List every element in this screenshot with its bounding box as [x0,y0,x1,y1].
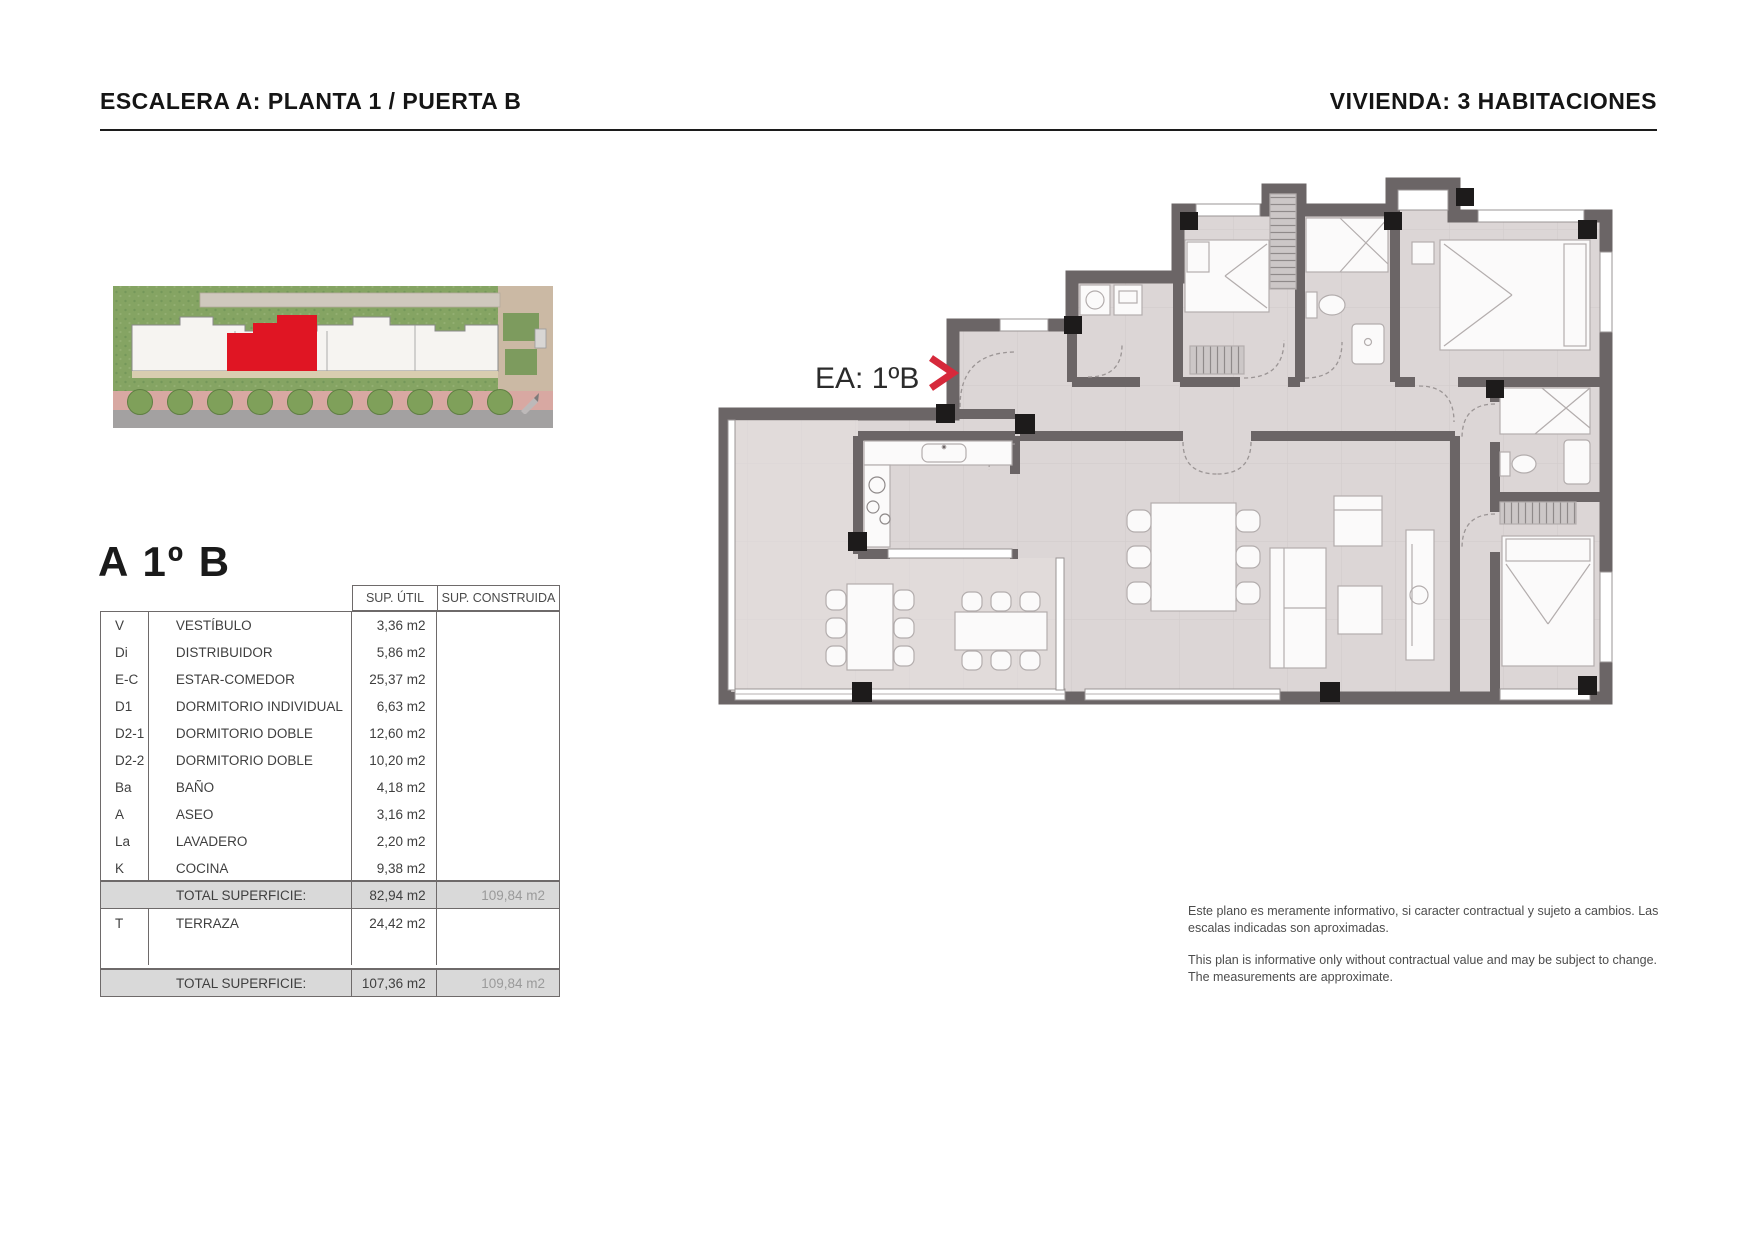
armchair [1334,496,1382,546]
table-row: VVESTÍBULO3,36 m2 [101,612,559,639]
table-row: D1DORMITORIO INDIVIDUAL6,63 m2 [101,693,559,720]
table-row: BaBAÑO4,18 m2 [101,774,559,801]
double-bed-2 [1502,536,1594,666]
terrace-table-2 [955,592,1047,670]
tv-sideboard [1406,530,1434,660]
site-car [535,329,546,348]
table-row: LaLAVADERO2,20 m2 [101,828,559,855]
table-row: D2-2DORMITORIO DOBLE10,20 m2 [101,747,559,774]
table-row: AASEO3,16 m2 [101,801,559,828]
table-row: E-CESTAR-COMEDOR25,37 m2 [101,666,559,693]
terrace-section: T TERRAZA 24,42 m2 [100,909,560,969]
page: ESCALERA A: PLANTA 1 / PUERTA B VIVIENDA… [0,0,1755,1240]
page-title-right: VIVIENDA: 3 HABITACIONES [1330,88,1657,115]
sofa [1270,548,1326,668]
coffee-table [1338,586,1382,634]
unit-title: A 1º B [98,538,231,586]
disclaimer-es: Este plano es meramente informativo, si … [1188,903,1663,938]
disclaimer-en: This plan is informative only without co… [1188,952,1663,987]
plan-unit-label: EA: 1ºB [815,362,919,395]
site-plan [105,253,565,435]
table-row: DiDISTRIBUIDOR5,86 m2 [101,639,559,666]
floor-plan: EA: 1ºB 0 0.5 1 2 3 [640,152,1620,712]
total-row-2: TOTAL SUPERFICIE: 107,36 m2 109,84 m2 [100,969,560,997]
terrace-table-1 [826,584,914,670]
total-row-1: TOTAL SUPERFICIE: 82,94 m2 109,84 m2 [100,881,560,909]
site-path [200,293,500,307]
table-row: KCOCINA9,38 m2 [101,855,559,882]
site-green-patch [503,313,539,341]
areas-table-body: VVESTÍBULO3,36 m2 DiDISTRIBUIDOR5,86 m2 … [100,611,560,881]
areas-table-header: SUP. ÚTIL SUP. CONSTRUIDA [352,585,560,611]
page-title-left: ESCALERA A: PLANTA 1 / PUERTA B [100,88,521,115]
col-header-sup-construida: SUP. CONSTRUIDA [437,585,560,611]
wardrobe [1270,194,1296,289]
north-arrow-icon [516,388,542,414]
radiator-2 [1500,502,1576,524]
single-bed [1185,240,1269,312]
radiator [1190,346,1244,374]
site-green-patch-2 [505,349,537,375]
site-building-base [132,371,498,378]
dining-table [1127,503,1260,611]
header-rule [100,129,1657,131]
table-row: D2-1DORMITORIO DOBLE12,60 m2 [101,720,559,747]
col-header-sup-util: SUP. ÚTIL [352,585,437,611]
table-row-terraza: T TERRAZA 24,42 m2 [101,909,559,937]
